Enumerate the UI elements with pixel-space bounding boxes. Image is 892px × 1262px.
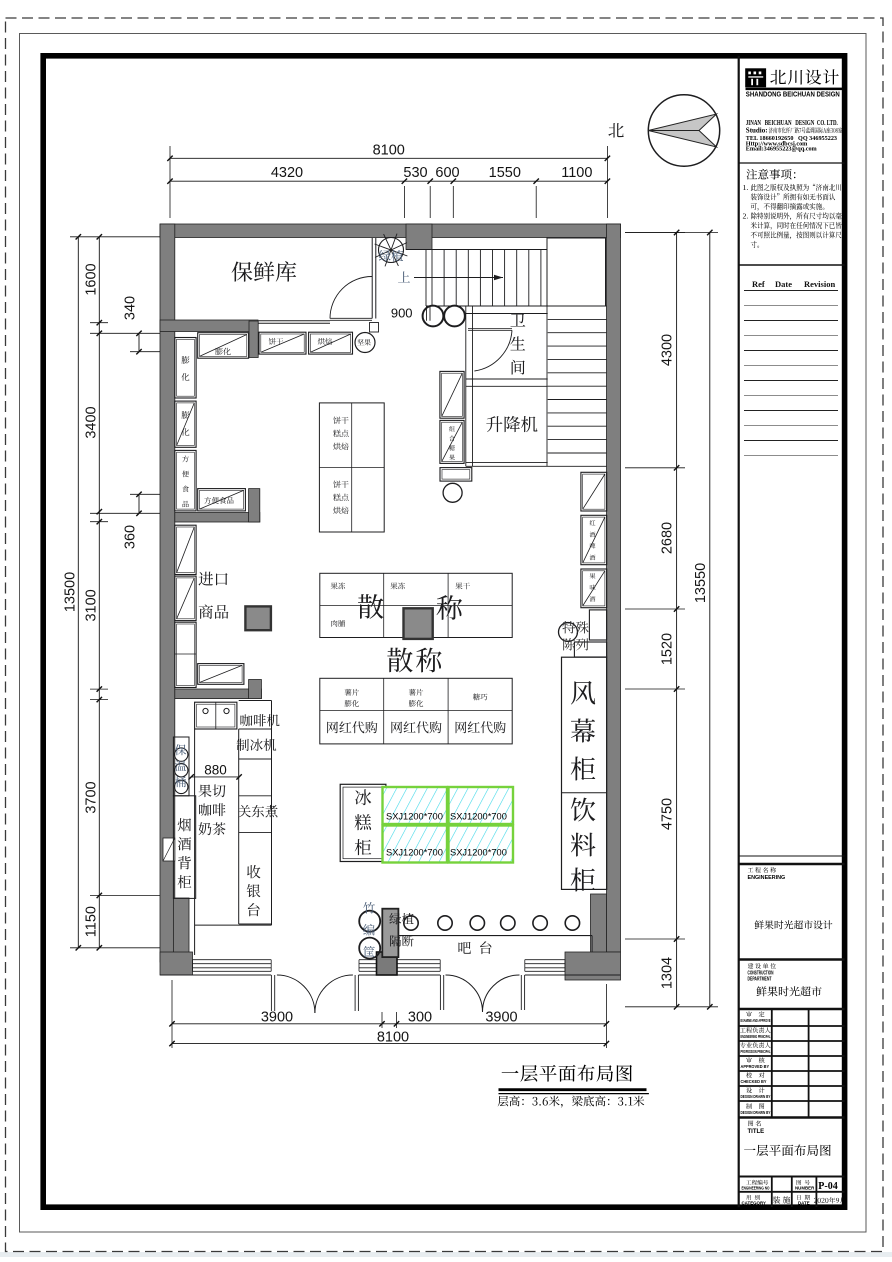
svg-text:600: 600 bbox=[435, 165, 459, 181]
svg-text:ENGINEERING: ENGINEERING bbox=[748, 875, 786, 881]
svg-text:2.: 2. bbox=[743, 212, 749, 221]
svg-text:NUMBER: NUMBER bbox=[795, 1186, 815, 1191]
svg-text:P-04: P-04 bbox=[818, 1181, 837, 1192]
svg-text:Date: Date bbox=[775, 279, 792, 289]
svg-text:4750: 4750 bbox=[660, 798, 676, 830]
svg-text:2680: 2680 bbox=[660, 522, 676, 554]
svg-text:1100: 1100 bbox=[561, 165, 592, 181]
svg-text:3400: 3400 bbox=[83, 406, 99, 438]
svg-text:360: 360 bbox=[123, 525, 139, 549]
svg-text:13550: 13550 bbox=[693, 563, 709, 603]
svg-text:1520: 1520 bbox=[660, 633, 676, 665]
svg-text:900: 900 bbox=[391, 306, 413, 321]
svg-text:DESIGN DRAWN BY: DESIGN DRAWN BY bbox=[741, 1094, 771, 1099]
svg-text:3900: 3900 bbox=[485, 1010, 517, 1026]
svg-text:3100: 3100 bbox=[83, 589, 99, 621]
svg-text:4300: 4300 bbox=[660, 334, 676, 366]
svg-text:3700: 3700 bbox=[83, 781, 99, 813]
svg-text:8100: 8100 bbox=[373, 142, 405, 158]
svg-text:1.: 1. bbox=[743, 183, 749, 192]
svg-text:DATE: DATE bbox=[798, 1201, 810, 1206]
svg-text:530: 530 bbox=[403, 165, 427, 181]
svg-text:SXJ1200*700: SXJ1200*700 bbox=[386, 812, 443, 822]
svg-text:PROFESSION PRINCIPAL: PROFESSION PRINCIPAL bbox=[741, 1049, 771, 1054]
svg-text:300: 300 bbox=[408, 1010, 432, 1026]
svg-text:1150: 1150 bbox=[83, 906, 99, 937]
svg-text:DESIGN DRAWN BY: DESIGN DRAWN BY bbox=[741, 1110, 771, 1115]
svg-text:Studio:: Studio: bbox=[746, 127, 768, 135]
svg-text:ENGINEERING PRINCIPAL: ENGINEERING PRINCIPAL bbox=[741, 1034, 771, 1039]
svg-text:TITLE: TITLE bbox=[748, 1129, 765, 1135]
svg-text:3900: 3900 bbox=[261, 1010, 293, 1026]
svg-text:APPROVED BY: APPROVED BY bbox=[741, 1064, 770, 1069]
svg-text:CATEGORY: CATEGORY bbox=[742, 1201, 766, 1206]
svg-text:CHECKED BY: CHECKED BY bbox=[741, 1079, 767, 1084]
svg-text:JINAN BEICHUAN DESIGN CO.: JINAN BEICHUAN DESIGN CO. LTD. bbox=[746, 119, 838, 127]
svg-text:1304: 1304 bbox=[660, 957, 676, 989]
svg-text:Email:346955223@qq.com: Email:346955223@qq.com bbox=[746, 146, 818, 153]
svg-text:4320: 4320 bbox=[271, 165, 303, 181]
svg-text:Ref: Ref bbox=[752, 279, 765, 289]
svg-text:SXJ1200*700: SXJ1200*700 bbox=[450, 848, 507, 858]
svg-text:SHANDONG BEICHUAN DESIGN: SHANDONG BEICHUAN DESIGN bbox=[746, 89, 840, 98]
svg-text:8100: 8100 bbox=[377, 1030, 409, 1046]
svg-text:EXAMINE AND APPROVE: EXAMINE AND APPROVE bbox=[741, 1018, 771, 1023]
svg-text:880: 880 bbox=[204, 763, 227, 778]
svg-text:ENGINEERING NO: ENGINEERING NO bbox=[742, 1186, 770, 1191]
svg-text:340: 340 bbox=[123, 296, 139, 320]
svg-text:1550: 1550 bbox=[489, 165, 521, 181]
svg-text:13500: 13500 bbox=[62, 572, 78, 612]
svg-text:DEPARTMENT: DEPARTMENT bbox=[748, 977, 772, 983]
svg-text:1600: 1600 bbox=[83, 263, 99, 295]
svg-text:SXJ1200*700: SXJ1200*700 bbox=[386, 848, 443, 858]
svg-text:SXJ1200*700: SXJ1200*700 bbox=[450, 812, 507, 822]
svg-text:Revision: Revision bbox=[804, 279, 835, 289]
